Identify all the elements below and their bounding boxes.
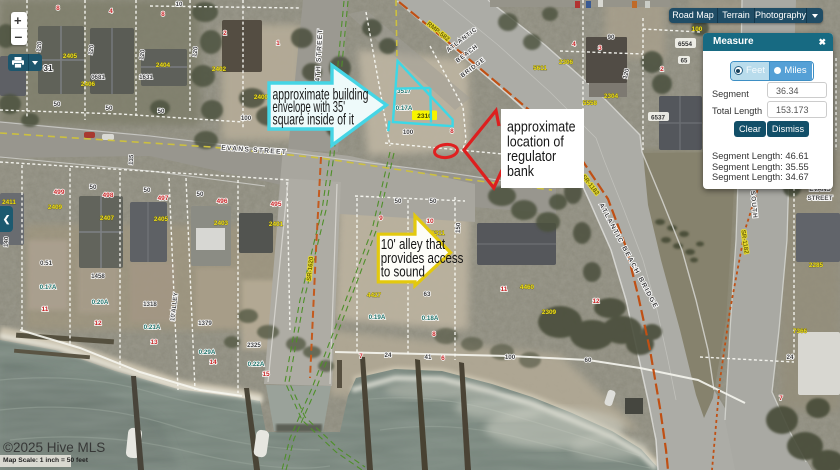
svg-text:5558: 5558 <box>583 100 598 107</box>
svg-text:to sound: to sound <box>381 263 425 280</box>
svg-text:2405: 2405 <box>154 216 169 223</box>
svg-text:11: 11 <box>501 286 508 293</box>
svg-text:120: 120 <box>35 41 43 53</box>
svg-text:50: 50 <box>106 105 113 112</box>
svg-text:135: 135 <box>127 154 135 166</box>
svg-text:2406: 2406 <box>81 81 96 88</box>
svg-text:2285: 2285 <box>809 262 824 269</box>
svg-text:11: 11 <box>42 306 49 313</box>
svg-text:50: 50 <box>158 108 165 115</box>
svg-text:4427: 4427 <box>367 292 382 299</box>
svg-text:495: 495 <box>270 201 281 208</box>
svg-text:1379: 1379 <box>198 320 212 327</box>
svg-text:2400: 2400 <box>254 94 269 101</box>
svg-text:8: 8 <box>161 11 165 18</box>
svg-text:0.17A: 0.17A <box>396 105 413 112</box>
svg-text:2: 2 <box>660 66 664 73</box>
svg-text:2: 2 <box>223 30 227 37</box>
svg-text:2325: 2325 <box>247 342 261 349</box>
svg-text:4460: 4460 <box>520 284 535 291</box>
svg-text:approximate: approximate <box>507 119 576 135</box>
svg-text:50: 50 <box>197 191 204 198</box>
svg-text:2407: 2407 <box>100 215 115 222</box>
svg-text:63: 63 <box>424 291 431 298</box>
svg-text:50: 50 <box>395 198 402 205</box>
svg-text:140: 140 <box>3 236 11 247</box>
svg-text:location of: location of <box>507 133 564 149</box>
svg-text:41: 41 <box>425 354 432 361</box>
svg-text:50: 50 <box>90 184 97 191</box>
svg-text:2401: 2401 <box>269 221 284 228</box>
svg-text:50: 50 <box>144 187 151 194</box>
svg-text:90: 90 <box>608 34 615 41</box>
svg-text:120: 120 <box>138 49 146 61</box>
svg-text:24: 24 <box>787 354 794 361</box>
svg-text:496: 496 <box>216 198 227 205</box>
svg-text:7: 7 <box>359 353 363 360</box>
svg-text:1318: 1318 <box>143 301 157 308</box>
svg-text:1458: 1458 <box>91 273 105 280</box>
svg-text:12: 12 <box>94 320 102 327</box>
svg-text:60: 60 <box>585 357 592 364</box>
svg-text:8: 8 <box>450 128 454 135</box>
svg-text:5611: 5611 <box>533 65 547 72</box>
svg-text:2403: 2403 <box>214 220 229 227</box>
svg-text:2411: 2411 <box>2 199 16 206</box>
svg-text:square inside of it: square inside of it <box>273 110 355 128</box>
svg-text:497: 497 <box>157 195 168 202</box>
svg-text:6: 6 <box>441 355 445 362</box>
svg-text:STREET: STREET <box>807 195 832 202</box>
svg-text:15: 15 <box>262 371 270 378</box>
svg-text:4: 4 <box>572 41 576 48</box>
svg-text:3: 3 <box>598 45 602 52</box>
svg-text:0.22A: 0.22A <box>248 361 265 368</box>
svg-text:100: 100 <box>692 26 703 33</box>
svg-text:2405: 2405 <box>63 53 78 60</box>
svg-text:0.51: 0.51 <box>40 260 53 267</box>
svg-text:499: 499 <box>53 189 64 196</box>
svg-text:0.17A: 0.17A <box>40 284 57 291</box>
svg-text:100: 100 <box>403 129 414 136</box>
svg-text:0.21A: 0.21A <box>144 324 161 331</box>
svg-text:50: 50 <box>54 101 61 108</box>
svg-text:498: 498 <box>102 192 113 199</box>
svg-text:14: 14 <box>209 359 217 366</box>
svg-text:6554: 6554 <box>678 41 693 48</box>
svg-text:9: 9 <box>379 215 383 222</box>
svg-text:6537: 6537 <box>651 115 666 122</box>
svg-text:120: 120 <box>191 46 199 58</box>
svg-text:2309: 2309 <box>542 309 557 316</box>
svg-text:0.19A: 0.19A <box>369 314 386 321</box>
svg-text:8: 8 <box>432 331 436 338</box>
svg-text:bank: bank <box>507 163 534 179</box>
svg-text:100: 100 <box>505 354 516 361</box>
svg-text:2304: 2304 <box>604 93 619 100</box>
svg-text:8: 8 <box>56 5 60 12</box>
svg-text:24: 24 <box>385 352 392 359</box>
svg-text:2409: 2409 <box>48 204 63 211</box>
svg-text:120: 120 <box>87 44 95 56</box>
svg-text:12: 12 <box>592 298 600 305</box>
svg-text:31: 31 <box>43 63 53 73</box>
svg-text:50: 50 <box>430 198 437 205</box>
svg-text:2404: 2404 <box>156 62 171 69</box>
svg-text:7: 7 <box>779 395 783 402</box>
svg-text:10: 10 <box>426 218 434 225</box>
svg-text:0.20A: 0.20A <box>92 299 109 306</box>
svg-text:7366: 7366 <box>793 328 808 335</box>
svg-text:regulator: regulator <box>507 148 557 164</box>
svg-text:2306: 2306 <box>559 59 574 66</box>
svg-text:150: 150 <box>455 222 463 233</box>
svg-text:10: 10 <box>176 1 183 8</box>
svg-text:100: 100 <box>241 115 252 122</box>
svg-text:0681: 0681 <box>91 74 105 81</box>
svg-text:4: 4 <box>109 8 113 15</box>
svg-text:2402: 2402 <box>212 66 227 73</box>
svg-text:65: 65 <box>681 59 688 65</box>
svg-text:13: 13 <box>150 339 158 346</box>
svg-text:1: 1 <box>276 40 280 47</box>
svg-text:0.29A: 0.29A <box>199 349 216 356</box>
svg-text:1631: 1631 <box>139 74 153 81</box>
svg-text:0.18A: 0.18A <box>422 315 439 322</box>
